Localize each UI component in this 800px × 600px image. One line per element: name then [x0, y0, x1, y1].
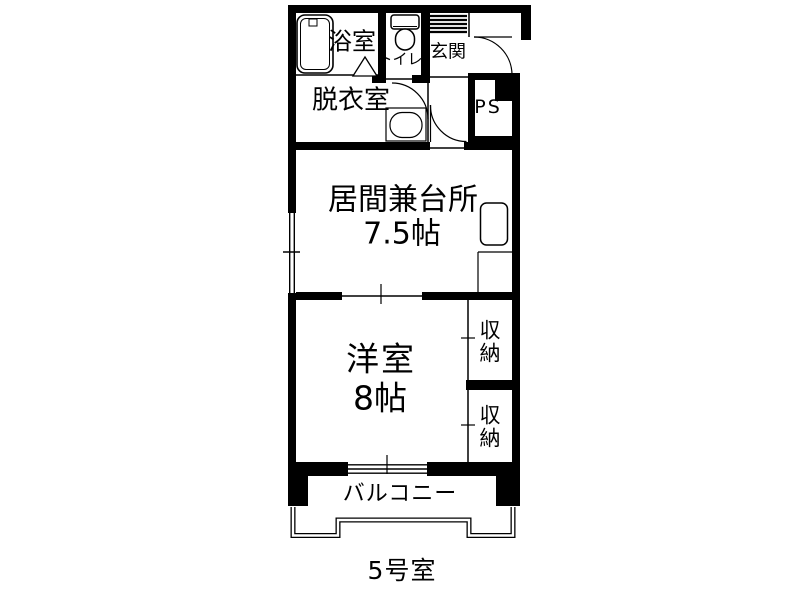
sliding-door-line	[342, 284, 422, 304]
room-label-entrance: 玄関	[430, 44, 466, 63]
room-label-western-room: 洋室	[346, 343, 416, 378]
room-label-bathroom: 浴室	[328, 29, 376, 54]
kitchen-counter	[478, 252, 512, 292]
floor-plan-linework	[0, 0, 800, 600]
room-label-balcony: バルコニー	[343, 482, 458, 505]
bath-folding-door-mark	[353, 57, 377, 76]
entrance-step-hatch	[430, 16, 467, 32]
entrance-door-arc	[474, 37, 512, 75]
room-label-living-kitchen: 居間兼台所	[328, 184, 478, 216]
room-size-western-room: 8帖	[353, 382, 407, 417]
kitchen-sink-icon	[481, 203, 508, 245]
room-label-closet-upper: 収納	[478, 319, 500, 365]
window-left	[283, 213, 300, 293]
window-balcony	[348, 455, 427, 474]
unit-number-label: 5号室	[368, 558, 437, 584]
toilet-icon	[391, 15, 419, 50]
hall-door-arc	[430, 105, 466, 142]
balcony-railing	[293, 507, 513, 536]
room-label-pipe-space: PS	[474, 98, 502, 118]
washbasin-icon	[386, 108, 426, 141]
room-label-dressing-room: 脱衣室	[312, 87, 390, 114]
room-label-toilet: トイレ	[377, 52, 422, 68]
floor-plan: 浴室 トイレ 玄関 脱衣室 PS 居間兼台所 7.5帖 洋室 8帖 収納 収納 …	[0, 0, 800, 600]
room-label-closet-lower: 収納	[478, 404, 500, 450]
room-size-living-kitchen: 7.5帖	[363, 218, 441, 250]
